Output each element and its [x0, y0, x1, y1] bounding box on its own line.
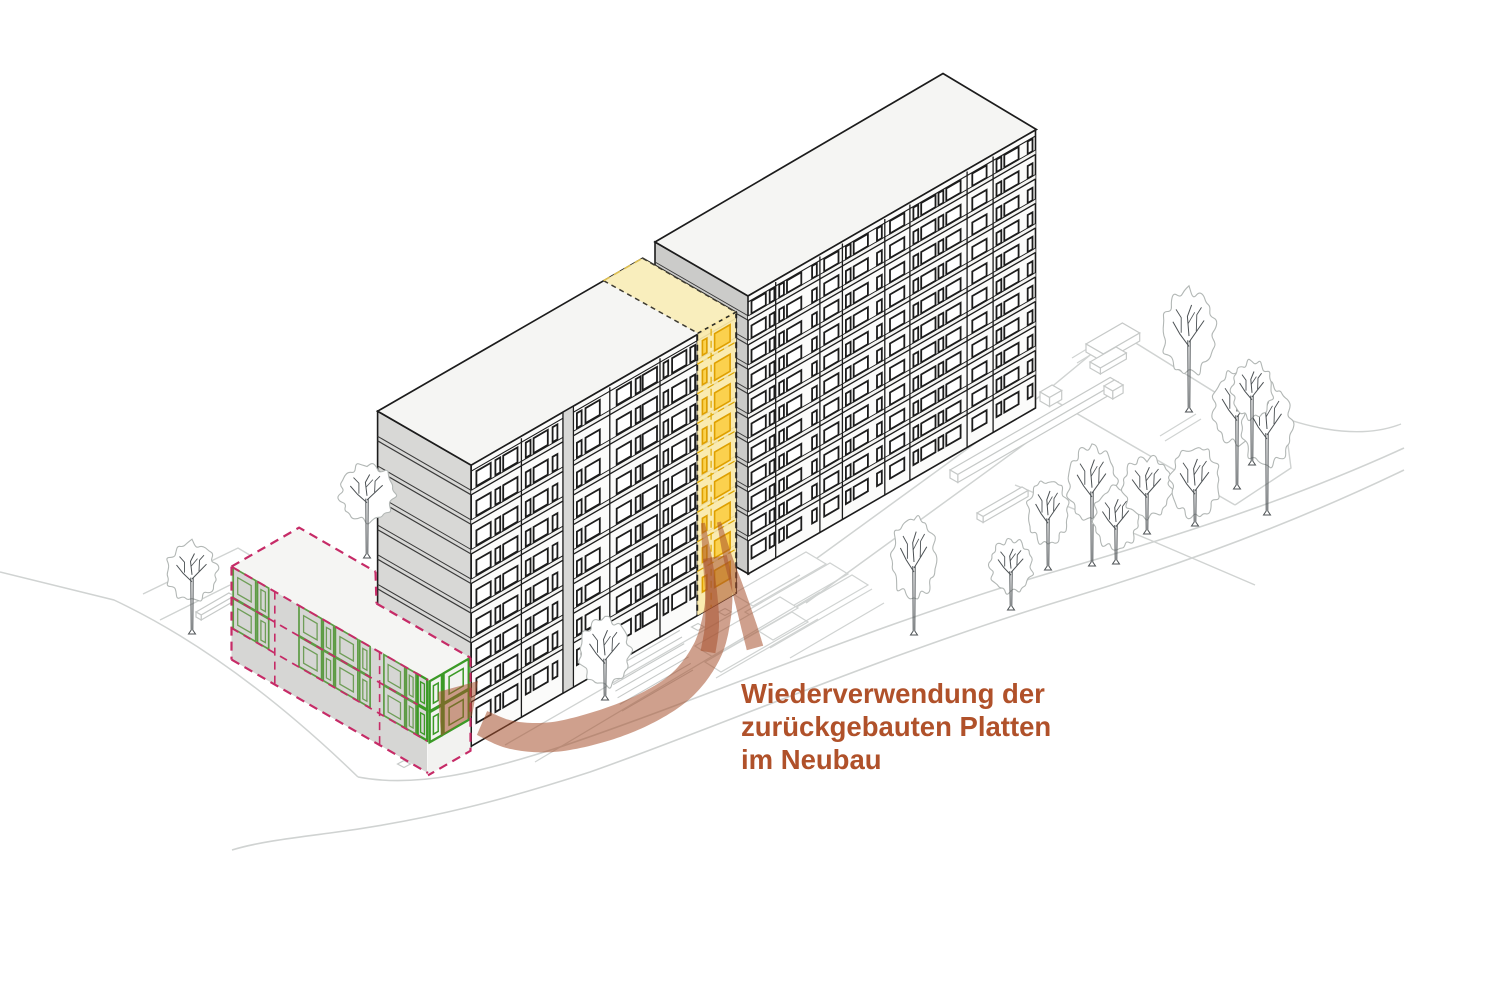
svg-text:im Neubau: im Neubau: [741, 744, 882, 775]
svg-text:zurückgebauten Platten: zurückgebauten Platten: [741, 711, 1051, 742]
svg-text:Wiederverwendung der: Wiederverwendung der: [741, 678, 1045, 709]
